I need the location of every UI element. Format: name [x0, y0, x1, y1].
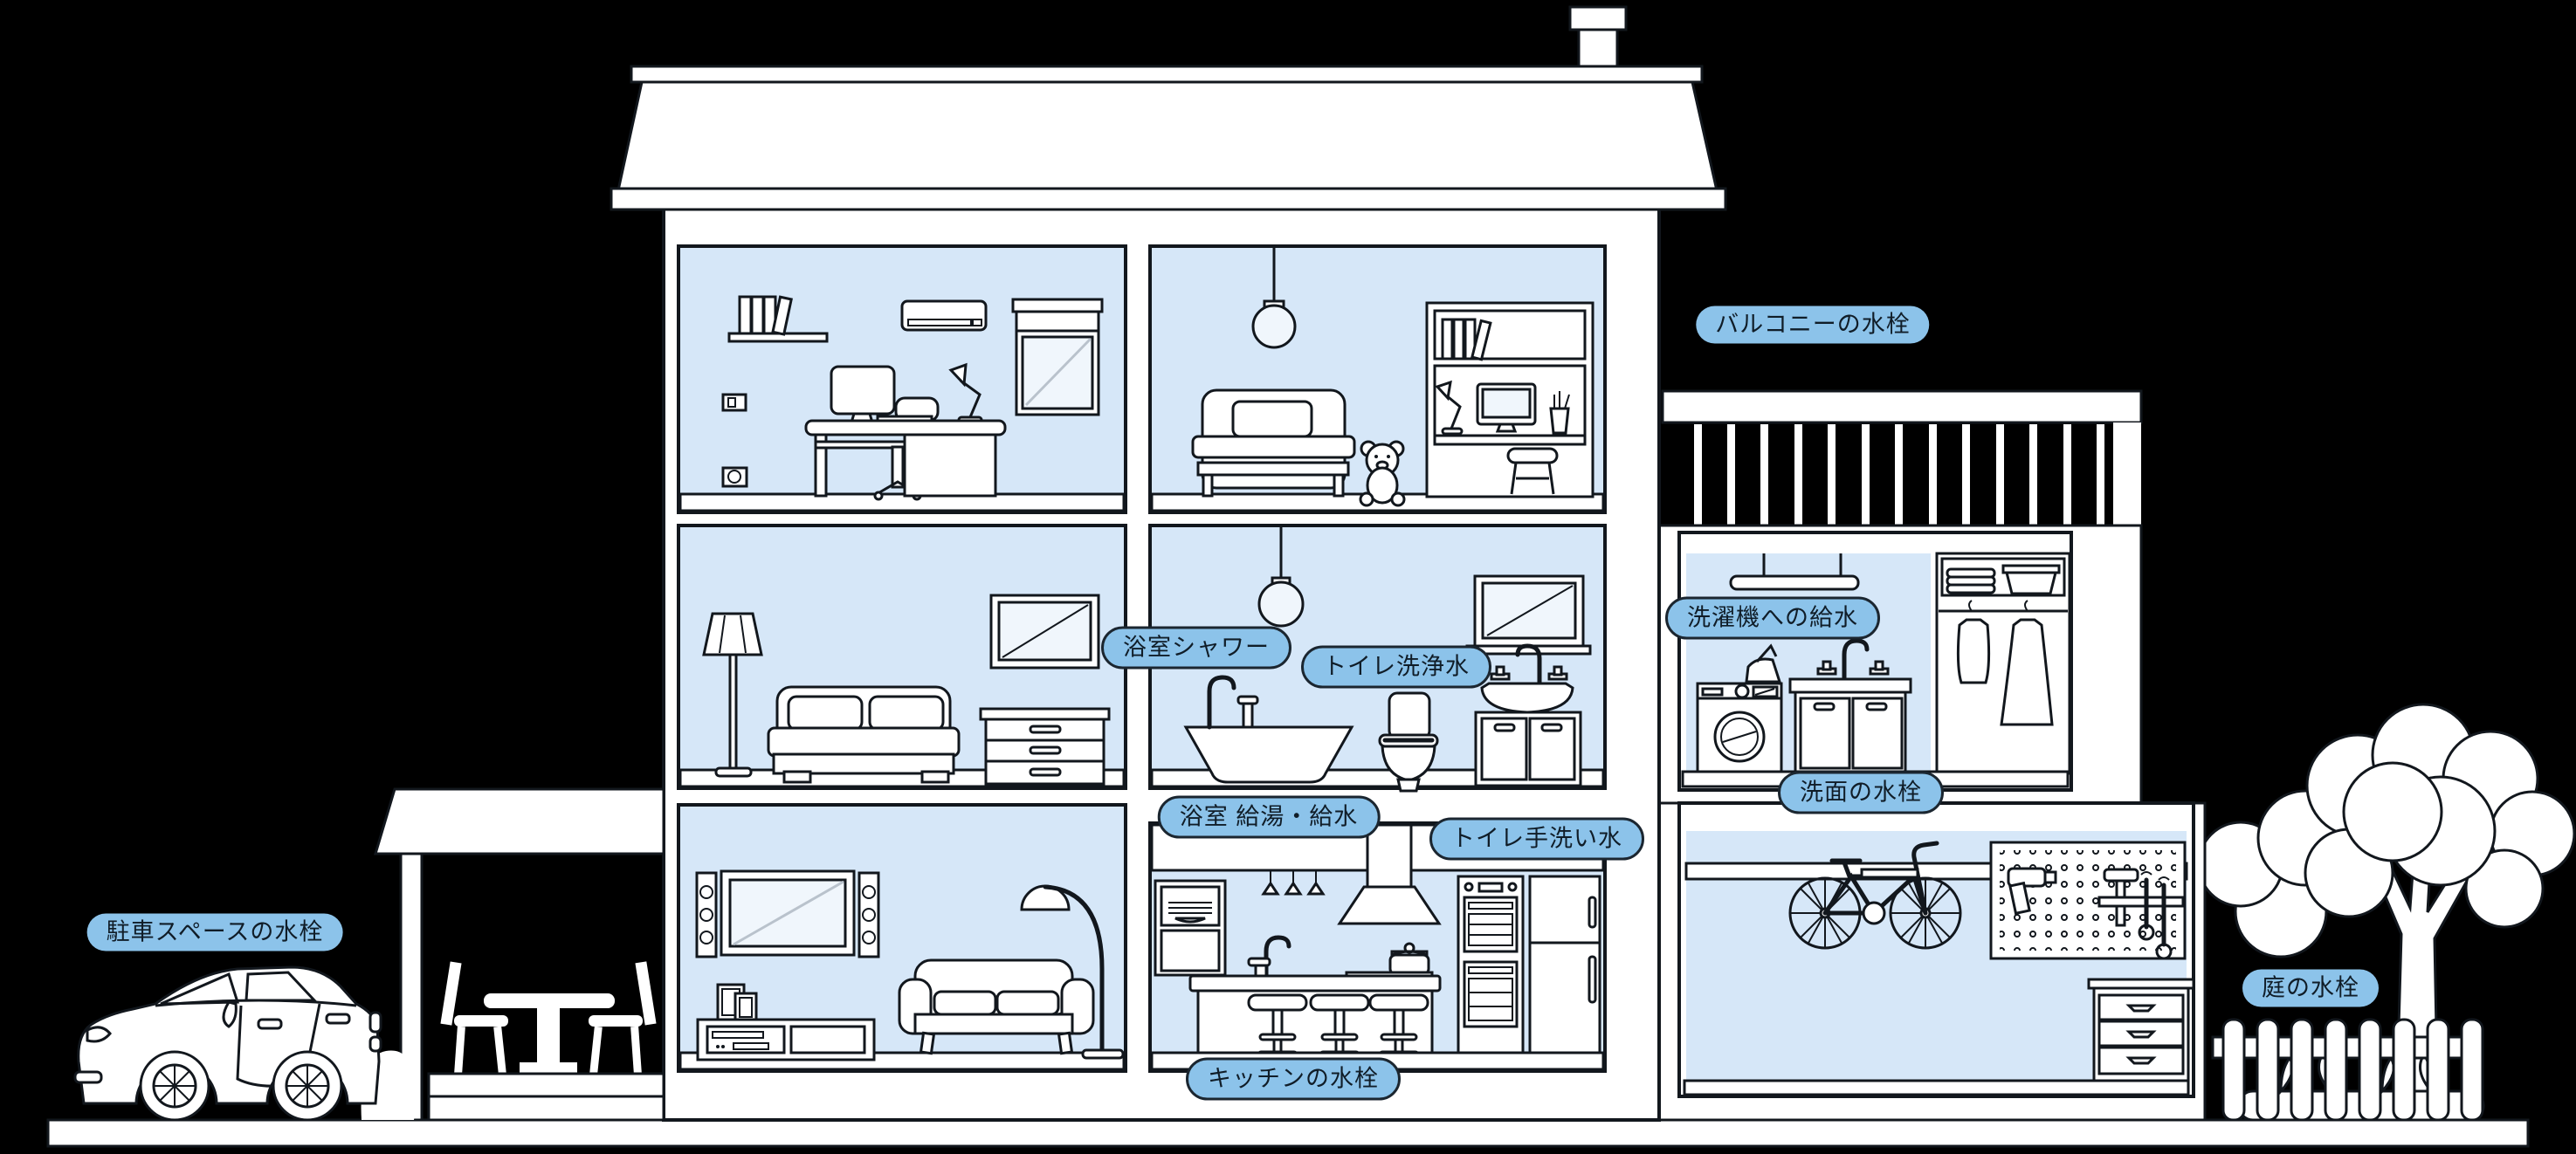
wall-picture	[991, 595, 1099, 668]
car	[75, 967, 381, 1120]
floor	[1684, 1081, 2188, 1095]
table-top	[484, 993, 615, 1008]
garden-fence	[2213, 1020, 2483, 1120]
label-washbasin-faucet: 洗面の水栓	[1778, 772, 1944, 814]
double-bed	[768, 687, 959, 782]
roof-ridge	[631, 66, 1702, 82]
desk-top	[806, 421, 1005, 435]
chair-seat	[589, 1015, 643, 1027]
tank-top	[1958, 620, 1988, 683]
label-parking-faucet: 駐車スペースの水栓	[87, 914, 343, 951]
label-toilet-flush-water: トイレ洗浄水	[1301, 646, 1491, 689]
front-wheel	[141, 1052, 209, 1120]
house-water-diagram: 駐車スペースの水栓 バルコニーの水栓 浴室シャワー トイレ洗浄水 洗濯機への給水…	[0, 0, 2576, 1154]
room-living	[678, 805, 1126, 1071]
door-handle	[258, 1020, 281, 1028]
chair-seat	[454, 1015, 508, 1027]
desk-cabinet	[905, 435, 995, 496]
house-illustration	[0, 0, 2576, 1154]
label-washer-supply: 洗濯機への給水	[1665, 597, 1880, 640]
label-bath-hot-cold-supply: 浴室 給湯・給水	[1158, 796, 1381, 839]
dish-cabinet	[1155, 881, 1225, 975]
drawer-cabinet	[2089, 979, 2194, 1081]
monitor	[831, 367, 894, 414]
room-garage	[1679, 803, 2194, 1096]
balcony-post	[2113, 422, 2141, 527]
room-bedroom	[678, 525, 1126, 788]
tv-stand	[698, 1020, 874, 1060]
room-study	[678, 246, 1126, 512]
room-kitchen	[1150, 823, 1605, 1071]
taillight	[370, 1013, 381, 1032]
window-roller	[1013, 299, 1102, 415]
table-column	[537, 1008, 560, 1064]
balcony	[1663, 391, 2141, 527]
dresser	[981, 709, 1109, 784]
patio-furniture	[440, 961, 656, 1074]
small-monitor	[1477, 384, 1535, 431]
label-toilet-hand-wash: トイレ手洗い水	[1429, 818, 1644, 861]
room-laundry	[1679, 532, 2071, 790]
ground	[48, 1120, 2528, 1146]
kids-bed	[1193, 390, 1354, 496]
tree-canopy	[2199, 704, 2574, 957]
roof	[618, 82, 1717, 190]
wall-tv	[721, 871, 854, 955]
rear-wheel	[273, 1052, 341, 1120]
floor	[680, 494, 1124, 511]
room-kids-bedroom	[1150, 246, 1605, 512]
closet	[1937, 553, 2070, 773]
air-conditioner	[902, 301, 986, 330]
carport	[375, 789, 664, 1120]
label-kitchen-faucet: キッチンの水栓	[1186, 1058, 1401, 1101]
refrigerator	[1530, 876, 1600, 1060]
speaker-right	[859, 873, 878, 957]
table-base	[520, 1062, 577, 1074]
label-bath-shower: 浴室シャワー	[1101, 627, 1291, 670]
bar-stools	[1249, 995, 1428, 1058]
basket	[2003, 566, 2059, 594]
bathroom-window	[1467, 576, 1590, 654]
roof-eave	[611, 189, 1725, 210]
washing-machine	[1698, 683, 1781, 774]
balcony-rail	[1663, 391, 2141, 422]
balcony-slats	[1694, 424, 2104, 525]
oven-tower	[1458, 876, 1523, 1060]
label-garden-faucet: 庭の水栓	[2242, 970, 2379, 1007]
tool-shelf	[2099, 897, 2183, 906]
towels	[1947, 569, 1994, 593]
door-handle	[327, 1014, 349, 1023]
desk-shelf-unit	[1427, 303, 1593, 497]
speaker-left	[697, 873, 716, 957]
label-balcony-faucet: バルコニーの水栓	[1696, 306, 1929, 344]
carport-roof	[375, 789, 664, 854]
pegboard	[1991, 842, 2185, 958]
